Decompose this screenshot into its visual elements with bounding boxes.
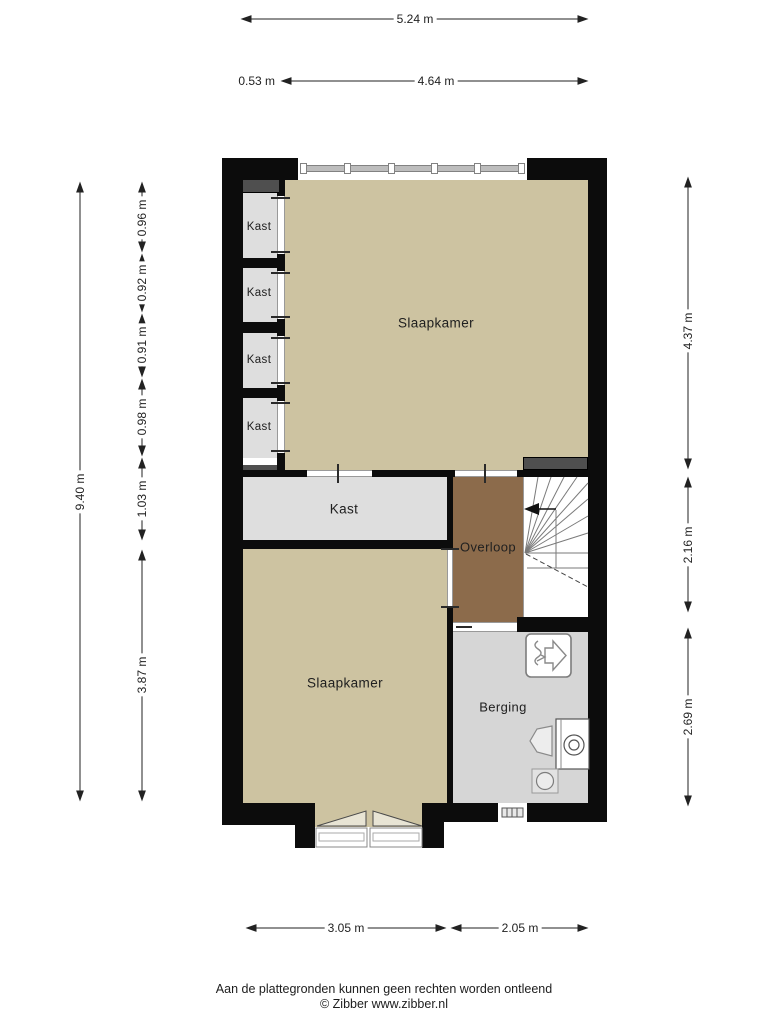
footer-disclaimer: Aan de plattegronden kunnen geen rechten… xyxy=(0,982,768,996)
door-tick xyxy=(271,402,290,404)
floorplan-page: Kast Kast Kast Kast Slaapkamer Kast Over… xyxy=(0,0,768,1024)
door-tick xyxy=(271,251,290,253)
window-mullion xyxy=(518,163,525,174)
opening-kast-4 xyxy=(277,401,285,453)
dim-top-offset: 0.53 m xyxy=(235,74,278,88)
room-label-slaapkamer-bottom: Slaapkamer xyxy=(307,676,383,691)
wall-vertical-center xyxy=(447,470,453,803)
wall-mid-horizontal xyxy=(243,470,588,477)
dim-right-seg-3: 2.69 m xyxy=(681,696,695,739)
door-tick xyxy=(271,382,290,384)
stairs-area xyxy=(523,477,588,617)
room-label-slaapkamer-top: Slaapkamer xyxy=(398,316,474,331)
room-label-berging: Berging xyxy=(479,700,527,715)
dim-top-inner: 4.64 m xyxy=(415,74,458,88)
door-tick xyxy=(441,606,459,608)
room-label-overloop: Overloop xyxy=(460,540,516,555)
kast-top-ledge xyxy=(243,180,279,193)
door-recess-floor xyxy=(315,803,423,827)
footer-copyright: © Zibber www.zibber.nl xyxy=(0,997,768,1011)
top-window-glass xyxy=(300,165,525,172)
wall-right xyxy=(588,158,607,822)
room-berging xyxy=(453,632,588,803)
window-mullion xyxy=(344,163,351,174)
opening-kast-middle xyxy=(307,470,372,477)
dim-left-seg-5: 1.03 m xyxy=(135,478,149,521)
opening-slaapkamer-bottom xyxy=(447,550,453,607)
window-mullion xyxy=(431,163,438,174)
room-label-kast-1: Kast xyxy=(247,221,272,233)
dim-left-seg-1: 0.96 m xyxy=(135,197,149,240)
wall-kast-divider-1 xyxy=(243,258,285,268)
wall-bottom-right xyxy=(527,803,588,822)
opening-kast-2 xyxy=(277,271,285,319)
door-tick xyxy=(271,272,290,274)
beam-over-stairs xyxy=(523,457,588,470)
door-tick xyxy=(484,464,486,483)
opening-kast-3 xyxy=(277,336,285,385)
window-mullion xyxy=(300,163,307,174)
wall-kast-divider-2 xyxy=(243,322,285,333)
door-tick xyxy=(337,464,339,483)
dim-right-seg-1: 4.37 m xyxy=(681,310,695,353)
door-tick xyxy=(441,548,459,550)
room-label-kast-4: Kast xyxy=(247,421,272,433)
window-mullion xyxy=(388,163,395,174)
berging-vent-opening xyxy=(498,803,527,822)
wall-left xyxy=(222,158,243,822)
dim-top-total: 5.24 m xyxy=(394,12,437,26)
room-label-kast-middle: Kast xyxy=(330,502,359,517)
wall-kast-divider-3 xyxy=(243,388,285,398)
door-tick xyxy=(271,316,290,318)
window-mullion xyxy=(474,163,481,174)
door-tick xyxy=(271,450,290,452)
door-tick xyxy=(456,626,472,628)
wall-door-jamb-left xyxy=(295,803,315,848)
kast-bottom-gap xyxy=(243,458,277,465)
dim-right-seg-2: 2.16 m xyxy=(681,524,695,567)
wall-door-jamb-right xyxy=(422,803,444,848)
room-label-kast-2: Kast xyxy=(247,287,272,299)
opening-kast-1 xyxy=(277,196,285,254)
wall-stairs-bottom xyxy=(517,617,588,632)
door-tick xyxy=(271,337,290,339)
room-label-kast-3: Kast xyxy=(247,354,272,366)
opening-slaapkamer-top xyxy=(455,470,517,477)
dim-left-total: 9.40 m xyxy=(73,471,87,514)
door-tick xyxy=(271,197,290,199)
dim-left-seg-2: 0.92 m xyxy=(135,262,149,305)
dim-left-seg-6: 3.87 m xyxy=(135,654,149,697)
dim-bottom-2: 2.05 m xyxy=(499,921,542,935)
dim-left-seg-4: 0.98 m xyxy=(135,396,149,439)
dim-bottom-1: 3.05 m xyxy=(325,921,368,935)
wall-bottom-mid xyxy=(444,803,498,822)
wall-kast-middle-bottom xyxy=(243,540,453,549)
dim-left-seg-3: 0.91 m xyxy=(135,324,149,367)
